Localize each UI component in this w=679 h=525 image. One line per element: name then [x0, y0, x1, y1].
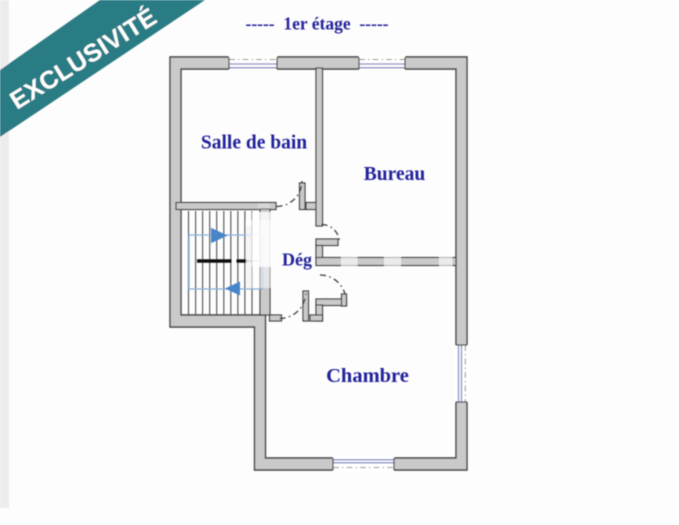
svg-text:Bureau: Bureau — [364, 164, 426, 185]
svg-text:----- 1er étage -----: ----- 1er étage ----- — [246, 14, 389, 34]
svg-text:Dég: Dég — [282, 250, 312, 270]
svg-text:Chambre: Chambre — [326, 365, 409, 387]
svg-text:Salle de bain: Salle de bain — [201, 133, 307, 154]
